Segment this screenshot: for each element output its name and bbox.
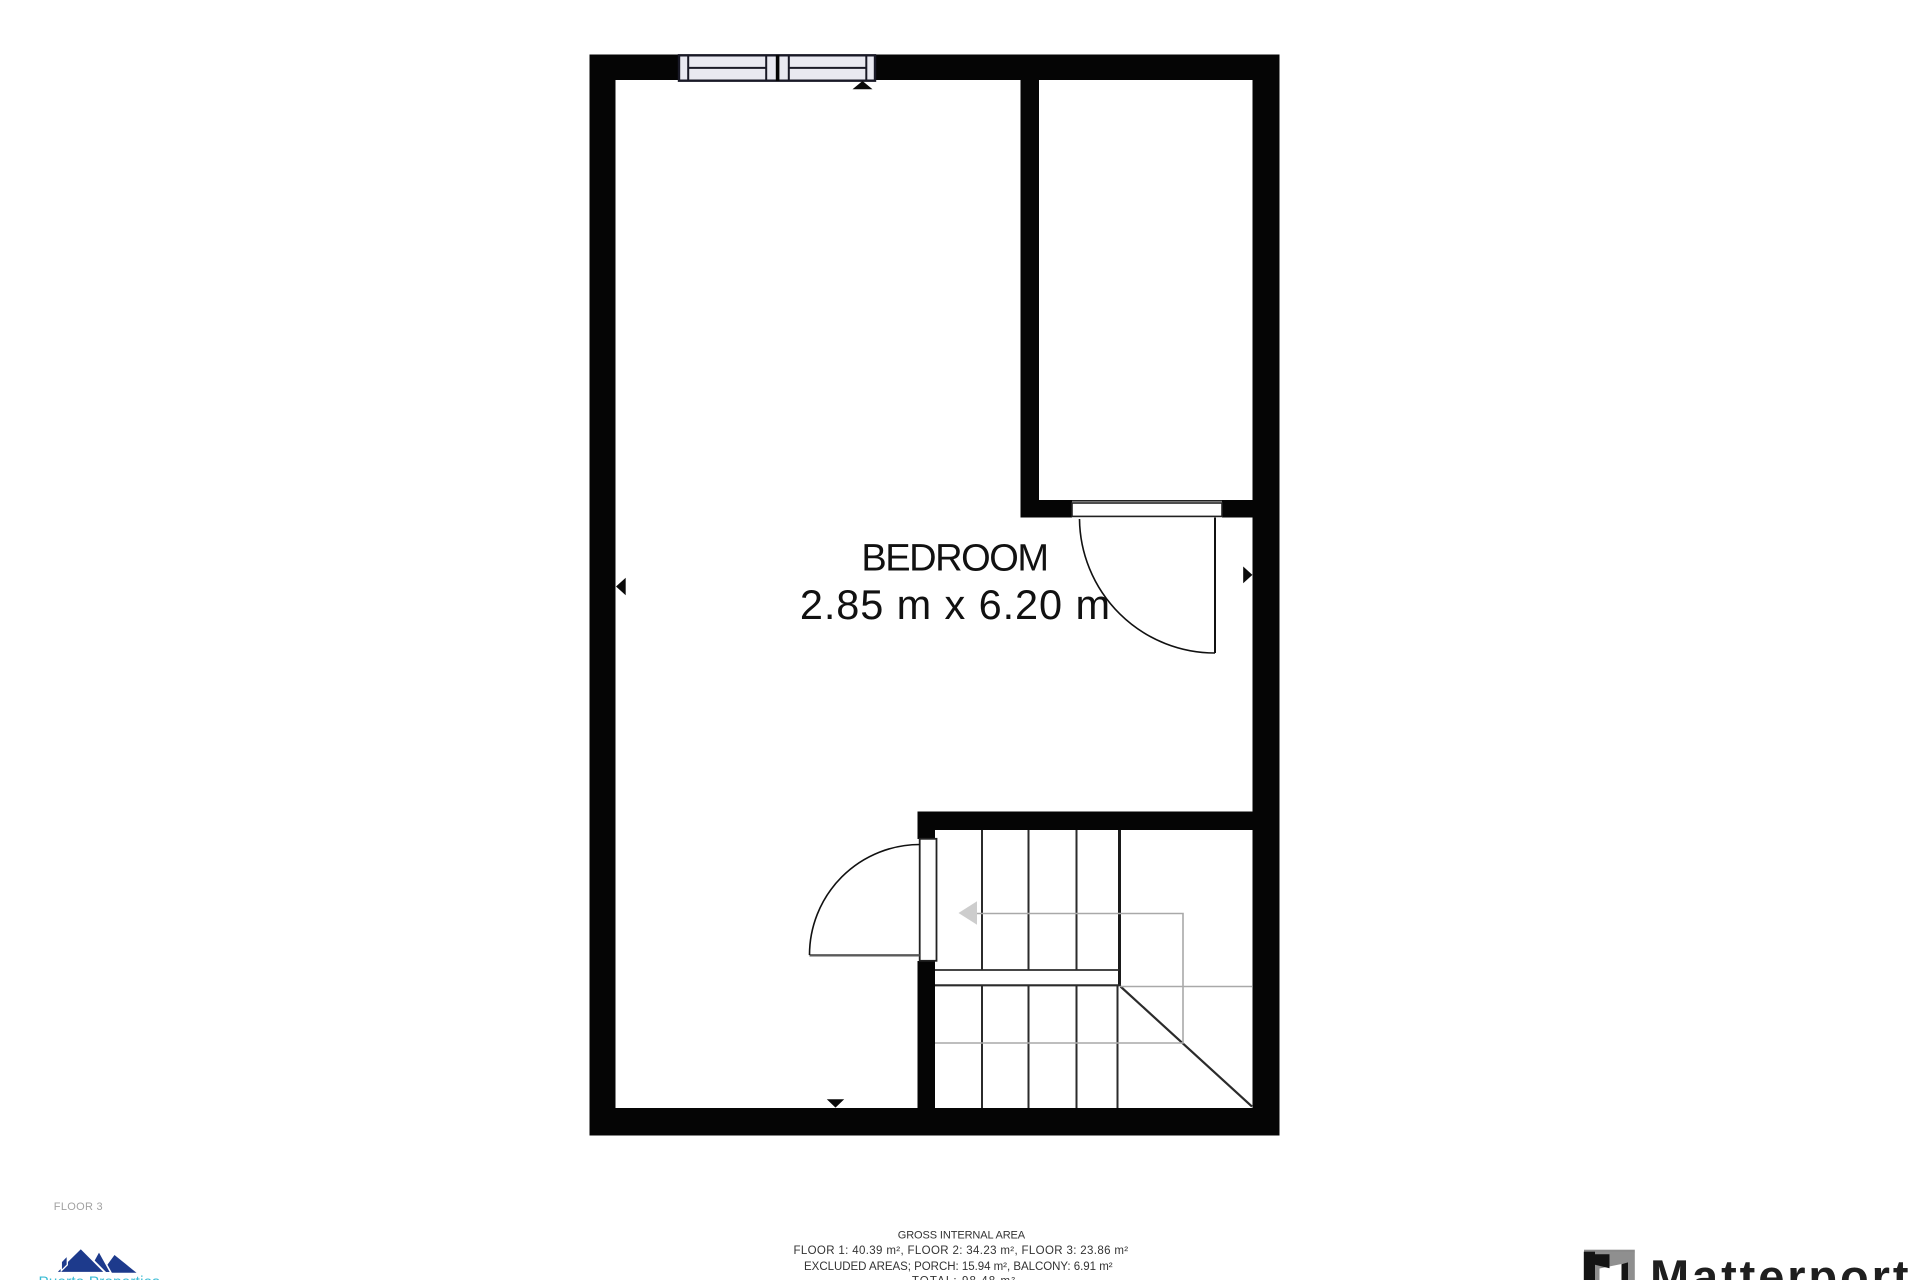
svg-text:Matterport: Matterport (1650, 1250, 1911, 1280)
svg-text:2.85 m x 6.20 m: 2.85 m x 6.20 m (800, 581, 1111, 628)
svg-text:GROSS INTERNAL AREA: GROSS INTERNAL AREA (898, 1230, 1026, 1242)
svg-text:FLOOR 3: FLOOR 3 (54, 1201, 103, 1213)
svg-text:Puerto Properties: Puerto Properties (39, 1274, 161, 1280)
svg-text:EXCLUDED AREAS; PORCH: 15.94 m: EXCLUDED AREAS; PORCH: 15.94 m², BALCONY… (804, 1261, 1113, 1273)
svg-text:BEDROOM: BEDROOM (861, 538, 1047, 580)
svg-text:FLOOR 1: 40.39 m², FLOOR 2: 34: FLOOR 1: 40.39 m², FLOOR 2: 34.23 m², FL… (794, 1245, 1129, 1257)
svg-text:TOTAL: 98.48 m²: TOTAL: 98.48 m² (912, 1276, 1016, 1280)
